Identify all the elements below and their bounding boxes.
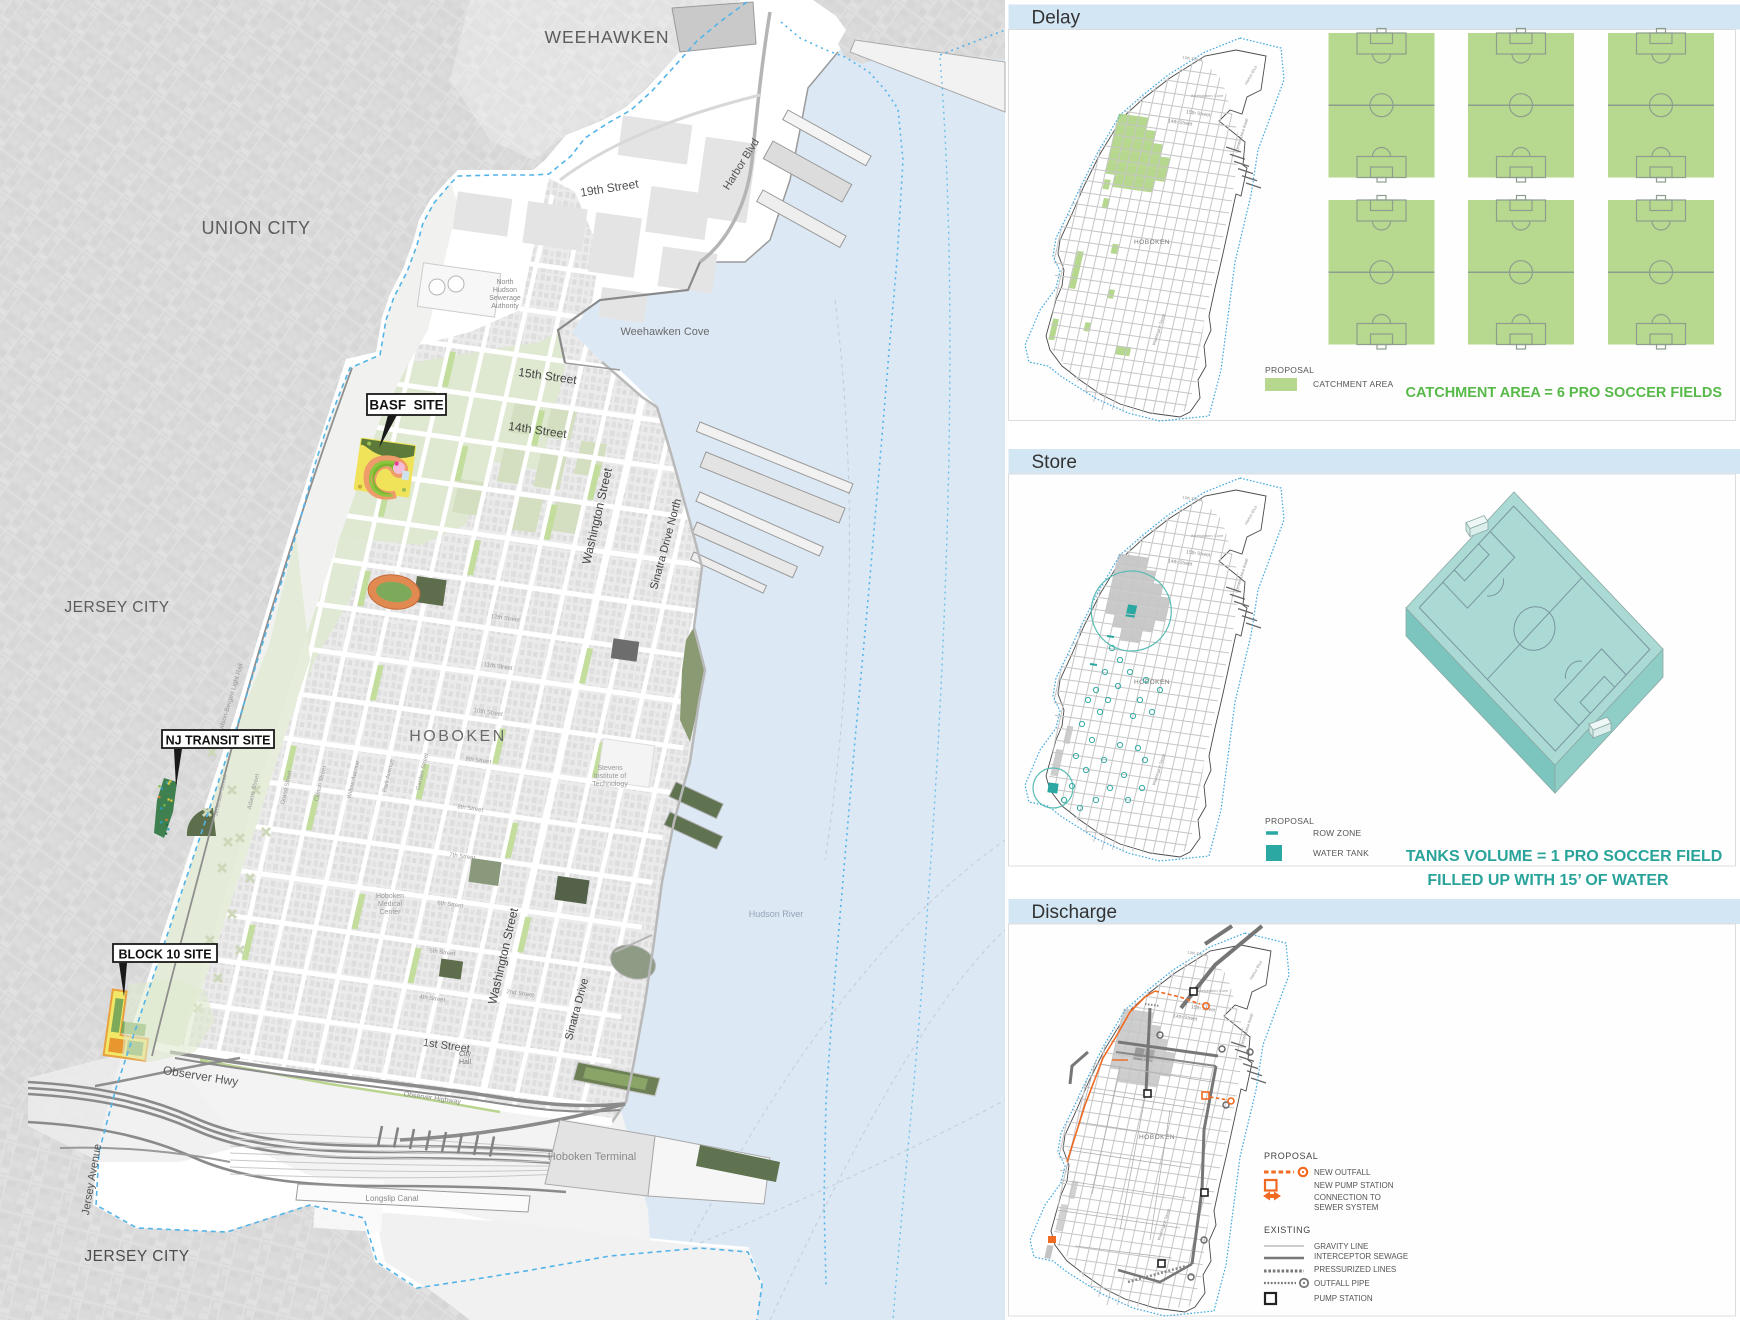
svg-text:Longslip Canal: Longslip Canal xyxy=(366,1194,419,1203)
svg-text:PROPOSAL: PROPOSAL xyxy=(1264,1151,1318,1161)
svg-text:Weehawken Cove: Weehawken Cove xyxy=(1196,988,1229,993)
svg-text:Store: Store xyxy=(1032,452,1077,473)
svg-text:JERSEY CITY: JERSEY CITY xyxy=(84,1248,189,1265)
svg-text:Hall: Hall xyxy=(459,1059,472,1066)
svg-text:BASF SITE: BASF SITE xyxy=(369,398,443,413)
svg-text:GRAVITY LINE: GRAVITY LINE xyxy=(1314,1242,1368,1251)
svg-text:WEEHAWKEN: WEEHAWKEN xyxy=(544,27,669,47)
svg-text:Stevens: Stevens xyxy=(597,765,623,772)
svg-text:Hudson: Hudson xyxy=(493,287,517,294)
svg-text:PROPOSAL: PROPOSAL xyxy=(1265,365,1314,375)
svg-text:Delay: Delay xyxy=(1032,8,1081,29)
svg-text:Medical: Medical xyxy=(378,901,403,908)
svg-text:BLOCK 10 SITE: BLOCK 10 SITE xyxy=(118,948,211,962)
svg-text:Institute of: Institute of xyxy=(594,773,626,780)
svg-text:TANKS VOLUME = 1 PRO SOCCER FI: TANKS VOLUME = 1 PRO SOCCER FIELD xyxy=(1406,848,1723,865)
svg-text:FILLED UP WITH 15’ OF WATER: FILLED UP WITH 15’ OF WATER xyxy=(1427,872,1669,889)
svg-text:Technology: Technology xyxy=(592,781,628,788)
svg-text:PRESSURIZED LINES: PRESSURIZED LINES xyxy=(1314,1265,1396,1274)
svg-text:Authority: Authority xyxy=(491,303,519,310)
svg-text:Weehawken Cove: Weehawken Cove xyxy=(620,326,709,338)
svg-text:NEW PUMP STATION: NEW PUMP STATION xyxy=(1314,1181,1394,1190)
svg-text:Hoboken Terminal: Hoboken Terminal xyxy=(548,1151,636,1163)
svg-text:INTERCEPTOR SEWAGE: INTERCEPTOR SEWAGE xyxy=(1314,1252,1408,1261)
svg-text:PROPOSAL: PROPOSAL xyxy=(1265,816,1314,826)
svg-text:NEW OUTFALL: NEW OUTFALL xyxy=(1314,1168,1371,1177)
svg-text:Hudson River: Hudson River xyxy=(749,909,804,919)
svg-text:North: North xyxy=(496,279,513,286)
svg-text:HOBOKEN: HOBOKEN xyxy=(1134,239,1170,246)
svg-text:City: City xyxy=(459,1051,472,1058)
svg-text:CATCHMENT AREA = 6 PRO SOCCER: CATCHMENT AREA = 6 PRO SOCCER FIELDS xyxy=(1406,385,1723,401)
svg-text:Sewerage: Sewerage xyxy=(489,295,521,302)
svg-text:Weehawken Cove: Weehawken Cove xyxy=(1191,533,1224,538)
svg-text:HOBOKEN: HOBOKEN xyxy=(1139,1134,1175,1141)
svg-text:CATCHMENT AREA: CATCHMENT AREA xyxy=(1313,379,1394,389)
svg-text:NJ TRANSIT SITE: NJ TRANSIT SITE xyxy=(166,734,271,748)
svg-text:UNION CITY: UNION CITY xyxy=(201,218,310,238)
svg-text:HOBOKEN: HOBOKEN xyxy=(409,728,507,745)
svg-text:OUTFALL PIPE: OUTFALL PIPE xyxy=(1314,1279,1370,1288)
svg-text:JERSEY CITY: JERSEY CITY xyxy=(64,599,169,616)
svg-text:ROW ZONE: ROW ZONE xyxy=(1313,828,1361,838)
svg-text:Discharge: Discharge xyxy=(1032,902,1118,923)
svg-text:Weehawken Cove: Weehawken Cove xyxy=(1191,93,1224,98)
svg-text:WATER TANK: WATER TANK xyxy=(1313,848,1369,858)
svg-text:Center: Center xyxy=(379,909,401,916)
svg-text:CONNECTION TO: CONNECTION TO xyxy=(1314,1193,1381,1202)
svg-text:EXISTING: EXISTING xyxy=(1264,1225,1311,1235)
svg-text:PUMP STATION: PUMP STATION xyxy=(1314,1294,1373,1303)
svg-text:HOBOKEN: HOBOKEN xyxy=(1134,679,1170,686)
svg-text:Hoboken: Hoboken xyxy=(376,893,404,900)
svg-text:SEWER SYSTEM: SEWER SYSTEM xyxy=(1314,1203,1379,1212)
